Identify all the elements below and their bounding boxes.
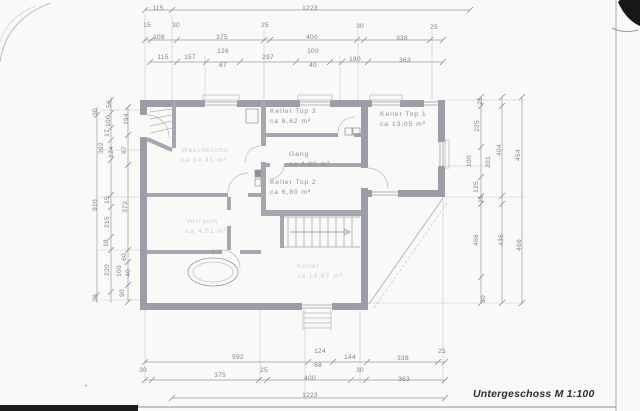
dimension-label-top: 30 <box>172 23 180 30</box>
room-label-keller-top-3: Keller Top 3ca 6,62 m² <box>270 107 317 127</box>
room-label-gang: Gangca 4,80 m² <box>289 150 330 170</box>
dimension-label-left: 90 <box>120 289 127 297</box>
dimension-label-bottom: 124 <box>314 349 326 356</box>
dimension-label-right: 225 <box>475 120 482 132</box>
room-label-keller-mitte-line: Keller <box>297 262 343 272</box>
central-staircase <box>282 217 360 247</box>
dimension-label-bottom: 30 <box>139 368 147 375</box>
floor-plan-sheet: 1151223153025302510837540033811515712667… <box>0 0 640 411</box>
dimension-label-top: 25 <box>430 25 438 32</box>
ink-blot <box>618 0 640 26</box>
extension-lines <box>100 14 525 400</box>
room-label-keller-mitte-line: ca 14,67 m² <box>297 272 343 282</box>
room-label-keller-top-3-line: Keller Top 3 <box>270 107 317 117</box>
dimension-label-left: 920 <box>93 199 100 211</box>
dimension-label-top: 363 <box>399 58 411 65</box>
dimension-label-bottom: 592 <box>232 355 244 362</box>
room-label-waschkueche: Waschkücheca 14,41 m² <box>181 146 229 166</box>
drawing-title: Untergeschoss M 1:100 <box>473 388 595 400</box>
dimension-label-left: 392 <box>99 142 106 154</box>
dimension-label-bottom: 400 <box>304 376 316 383</box>
dimension-label-right: 404 <box>497 144 504 156</box>
room-label-waschkueche-line: Waschküche <box>181 146 229 156</box>
dimension-label-top: 67 <box>219 63 227 70</box>
dimension-label-top: 297 <box>262 55 274 62</box>
dimension-label-top: 1223 <box>302 6 318 13</box>
dimension-label-inner: 375 <box>211 250 223 257</box>
dimension-label-left: 30 <box>93 108 100 116</box>
dimension-label-top: 115 <box>152 6 163 13</box>
dimension-label-top: 15 <box>143 23 151 30</box>
entry-diagonal-wall <box>147 139 172 150</box>
room-label-keller-top-1: Keller Top 1ca 13,05 m² <box>380 110 427 130</box>
registration-cross: + <box>84 383 88 390</box>
dimension-label-right: 25 <box>479 195 486 203</box>
dimension-label-left: 56 <box>107 100 114 108</box>
dimension-label-top: 180 <box>349 57 361 64</box>
room-label-waschkueche-line: ca 14,41 m² <box>181 156 229 166</box>
dimension-label-left: 373 <box>123 201 130 213</box>
dimension-label-bottom: 338 <box>397 356 409 363</box>
dimension-label-bottom: 144 <box>344 355 356 362</box>
room-label-keller-top-2-line: Keller Top 2 <box>270 178 317 188</box>
dimension-label-left: 124 <box>109 146 116 158</box>
dimension-label-right: 100 <box>467 155 474 167</box>
dimension-label-top: 25 <box>261 23 269 30</box>
dimension-label-left: 60 <box>122 253 129 261</box>
dimension-label-right: 30 <box>481 295 488 303</box>
dimension-label-top: 400 <box>306 35 318 42</box>
dimension-label-left: 30 <box>93 294 100 302</box>
dimension-label-left: 194 <box>124 113 131 125</box>
dimension-label-left: 15 <box>105 196 112 204</box>
dimension-label-top: 115 <box>157 55 168 62</box>
dimension-label-right: 436 <box>499 234 506 246</box>
dimension-label-top: 40 <box>309 63 317 70</box>
dimension-label-bottom: 375 <box>214 373 226 380</box>
room-label-keller-top-2: Keller Top 2ca 6,80 m² <box>270 178 317 198</box>
dimension-label-left: 18 <box>104 239 111 247</box>
dimension-label-left: 100 <box>117 265 124 277</box>
exterior-steps <box>303 310 331 330</box>
dimension-label-bottom: 1223 <box>302 393 318 400</box>
dimension-label-left: 100 <box>106 115 113 127</box>
room-label-vorraum: Vorraumca 4,51 m² <box>186 217 227 237</box>
dimension-label-left: 17 <box>105 129 112 137</box>
dimension-label-left: 220 <box>105 264 112 276</box>
room-label-gang-line: Gang <box>289 150 330 160</box>
room-label-keller-top-1-line: Keller Top 1 <box>380 110 427 120</box>
dimension-label-top: 157 <box>184 55 196 62</box>
room-label-keller-top-1-line: ca 13,05 m² <box>380 120 427 130</box>
dimension-label-top: 100 <box>307 49 319 56</box>
room-label-vorraum-line: ca 4,51 m² <box>186 227 227 237</box>
dimension-label-right: 125 <box>474 181 481 193</box>
room-label-keller-mitte: Kellerca 14,67 m² <box>297 262 343 282</box>
terrain-cut-line <box>369 198 447 308</box>
dimension-label-right: 454 <box>516 149 523 161</box>
room-label-keller-top-3-line: ca 6,62 m² <box>270 117 317 127</box>
dimension-label-right: 466 <box>474 234 481 246</box>
dimension-label-bottom: 25 <box>438 349 446 356</box>
room-label-keller-top-2-line: ca 6,80 m² <box>270 188 317 198</box>
dimension-label-top: 30 <box>356 24 364 31</box>
dimension-label-top: 375 <box>216 35 228 42</box>
dimension-label-right: 466 <box>517 239 524 251</box>
room-label-gang-line: ca 4,80 m² <box>289 160 330 170</box>
dimension-label-top: 126 <box>217 49 229 56</box>
dimension-label-left: 67 <box>122 146 129 154</box>
dimension-label-top: 338 <box>396 36 408 43</box>
dimension-label-bottom: 363 <box>398 377 410 384</box>
dimension-label-right: 201 <box>486 156 493 168</box>
dimension-label-bottom: 68 <box>314 363 322 370</box>
dimension-label-bottom: 30 <box>356 368 364 375</box>
room-label-vorraum-line: Vorraum <box>186 217 227 227</box>
dimension-label-left: 40 <box>126 269 133 277</box>
dimension-label-top: 108 <box>153 35 165 42</box>
entry-steps <box>150 109 172 133</box>
dimension-label-right: 25 <box>478 97 485 105</box>
outer-walls <box>140 100 445 310</box>
dimension-label-left: 215 <box>105 216 112 228</box>
dimension-label-bottom: 25 <box>260 368 268 375</box>
